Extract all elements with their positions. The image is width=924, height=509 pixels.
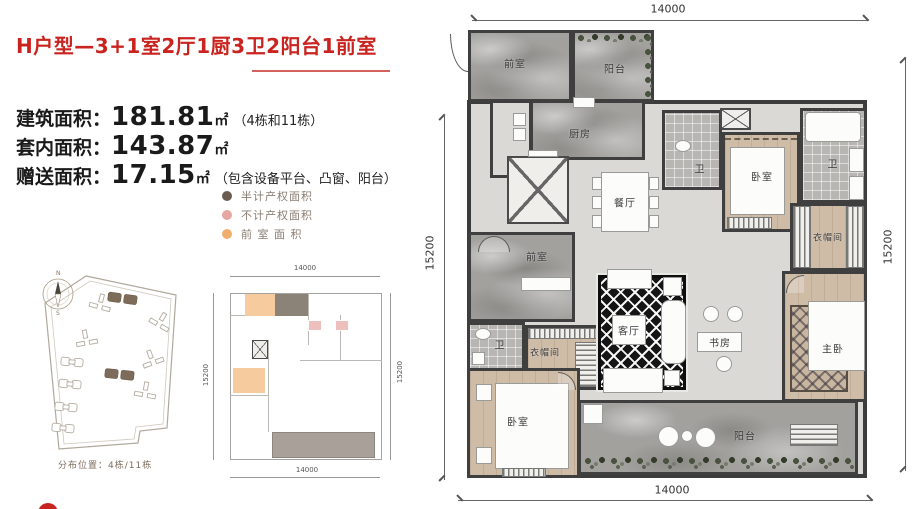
room-label: 衣帽间 [530, 346, 560, 359]
thumb-dim-top: 14000 [294, 264, 316, 272]
toilet-icon [475, 328, 491, 340]
legend-item: 半计产权面积 [222, 188, 313, 204]
dim-line-right [905, 58, 906, 471]
thumb-dim-line [390, 293, 391, 460]
washer-icon [583, 404, 603, 424]
chair [649, 177, 659, 190]
room-label: 卧室 [507, 414, 529, 429]
legend-item: 前 室 面 积 [222, 226, 303, 242]
thumb-dim-left: 15200 [202, 364, 210, 386]
appliance-icon [513, 113, 526, 126]
compass-south-label: S [56, 310, 60, 317]
thumb-wall [230, 395, 268, 396]
nightstand [476, 384, 492, 401]
slide: H户型—3+1室2厅1厨3卫2阳台1前室 建筑面积：181.81㎡ （4栋和11… [0, 0, 924, 509]
room-label: 衣帽间 [813, 231, 843, 244]
area-note: （4栋和11栋） [233, 114, 323, 129]
nightstand [476, 447, 492, 464]
highlighted-buildings [105, 292, 138, 380]
room-label: 前室 [526, 249, 548, 264]
thumb-elevator-icon [252, 340, 268, 359]
outdoor-table [681, 430, 693, 442]
area-unit: ㎡ [196, 171, 210, 187]
title-underline [252, 70, 390, 72]
thumb-wall [308, 293, 309, 345]
door-arc [450, 34, 468, 72]
chair [716, 356, 732, 372]
outdoor-chair [695, 427, 716, 448]
room-label: 客厅 [617, 323, 641, 338]
area-row-gift: 赠送面积：17.15㎡ （包含设备平台、凸窗、阳台） [16, 160, 397, 190]
legend-dot-half-property [222, 191, 232, 201]
outdoor-chair [658, 426, 679, 447]
room-label: 书房 [709, 335, 731, 350]
dashed-line [725, 138, 797, 140]
thumb-pink-zone [308, 320, 322, 331]
side-table [664, 370, 680, 386]
lounge-chair [661, 300, 686, 364]
side-table [663, 277, 682, 296]
sink [472, 352, 485, 365]
area-value: 181.81 [111, 102, 214, 132]
thumb-front-room-zone [245, 294, 275, 316]
bench [790, 424, 838, 446]
dim-line-left [444, 115, 445, 480]
thumb-wall [300, 360, 382, 361]
room-label: 卫 [695, 161, 706, 176]
area-note: （包含设备平台、凸窗、阳台） [215, 172, 397, 187]
legend-label: 不计产权面积 [241, 207, 313, 223]
shaft-icon [720, 108, 751, 130]
compass-icon [43, 279, 73, 309]
chair [592, 196, 602, 209]
site-plan-graphic [20, 262, 210, 462]
area-label: 建筑面积： [16, 108, 111, 130]
dim-bottom: 14000 [655, 484, 690, 497]
thumb-dark-zone [275, 294, 308, 316]
bathtub [805, 112, 861, 142]
area-row-inner: 套内面积：143.87㎡ [16, 131, 228, 161]
radiator [727, 217, 772, 229]
chair [649, 215, 659, 228]
chair [592, 215, 602, 228]
room-label: 餐厅 [614, 195, 636, 210]
room-label: 卫 [828, 156, 839, 171]
chair [592, 177, 602, 190]
thumb-front-room-zone [233, 368, 265, 393]
radiator [502, 468, 546, 477]
wardrobe-shelving [793, 206, 811, 268]
thumb-wall [268, 340, 269, 432]
appliance-icon [513, 128, 526, 141]
wardrobe-shelving [846, 206, 864, 268]
plants-strip [642, 33, 652, 99]
chair [649, 196, 659, 209]
room-label: 卫 [495, 337, 506, 352]
area-label: 套内面积： [16, 137, 111, 159]
dim-right: 15200 [882, 230, 895, 265]
bed [808, 301, 865, 371]
plants-strip [582, 456, 854, 471]
chair [703, 306, 719, 322]
dim-line-top [472, 20, 868, 21]
console-cabinet [521, 277, 571, 291]
area-value: 143.87 [111, 131, 214, 161]
room-label: 厨房 [569, 126, 591, 141]
legend-label: 前 室 面 积 [241, 226, 303, 242]
room-label: 主卧 [822, 341, 844, 356]
area-unit: ㎡ [214, 142, 228, 158]
chair [727, 306, 743, 322]
legend-dot-no-property [222, 210, 232, 220]
thumb-dim-line [213, 293, 214, 460]
elevator-icon [507, 156, 569, 224]
dim-top: 14000 [651, 3, 686, 16]
page-title: H户型—3+1室2厅1厨3卫2阳台1前室 [16, 30, 377, 59]
room-bath-mid [662, 110, 722, 190]
room-label: 阳台 [734, 428, 756, 443]
elevator-door [528, 150, 558, 157]
legend-dot-front-room [222, 229, 232, 239]
thumb-balcony-zone [272, 432, 375, 458]
thumb-dim-right: 15200 [396, 361, 404, 383]
site-plan-caption: 分布位置：4栋/11栋 [58, 458, 218, 471]
thumb-dim-bottom: 14000 [296, 466, 318, 474]
room-label: 阳台 [604, 61, 626, 76]
toilet-icon [675, 140, 691, 152]
thumb-dim-line [230, 477, 380, 478]
sofa [607, 269, 652, 289]
site-plan: N S [20, 262, 210, 462]
dim-left: 15200 [424, 236, 437, 271]
legend-item: 不计产权面积 [222, 207, 313, 223]
room-label: 前室 [504, 56, 526, 71]
dim-line-bottom [458, 500, 872, 501]
area-label: 赠送面积： [16, 166, 111, 188]
room-label: 卧室 [751, 169, 773, 184]
compass-north-label: N [56, 270, 61, 277]
sink [849, 148, 864, 172]
area-row-building: 建筑面积：181.81㎡ （4栋和11栋） [16, 102, 323, 132]
page-number-badge [38, 503, 58, 509]
floor-plan: 14000 14000 15200 15200 [420, 0, 924, 509]
plants-strip [575, 33, 651, 42]
thumb-dim-line [230, 276, 380, 277]
area-value: 17.15 [111, 160, 196, 190]
legend-label: 半计产权面积 [241, 188, 313, 204]
wardrobe-shelving [528, 328, 597, 339]
sofa [603, 368, 663, 393]
area-unit: ㎡ [214, 113, 228, 129]
thumb-pink-zone [335, 320, 349, 331]
stove-icon [573, 97, 595, 108]
sink [849, 176, 864, 200]
